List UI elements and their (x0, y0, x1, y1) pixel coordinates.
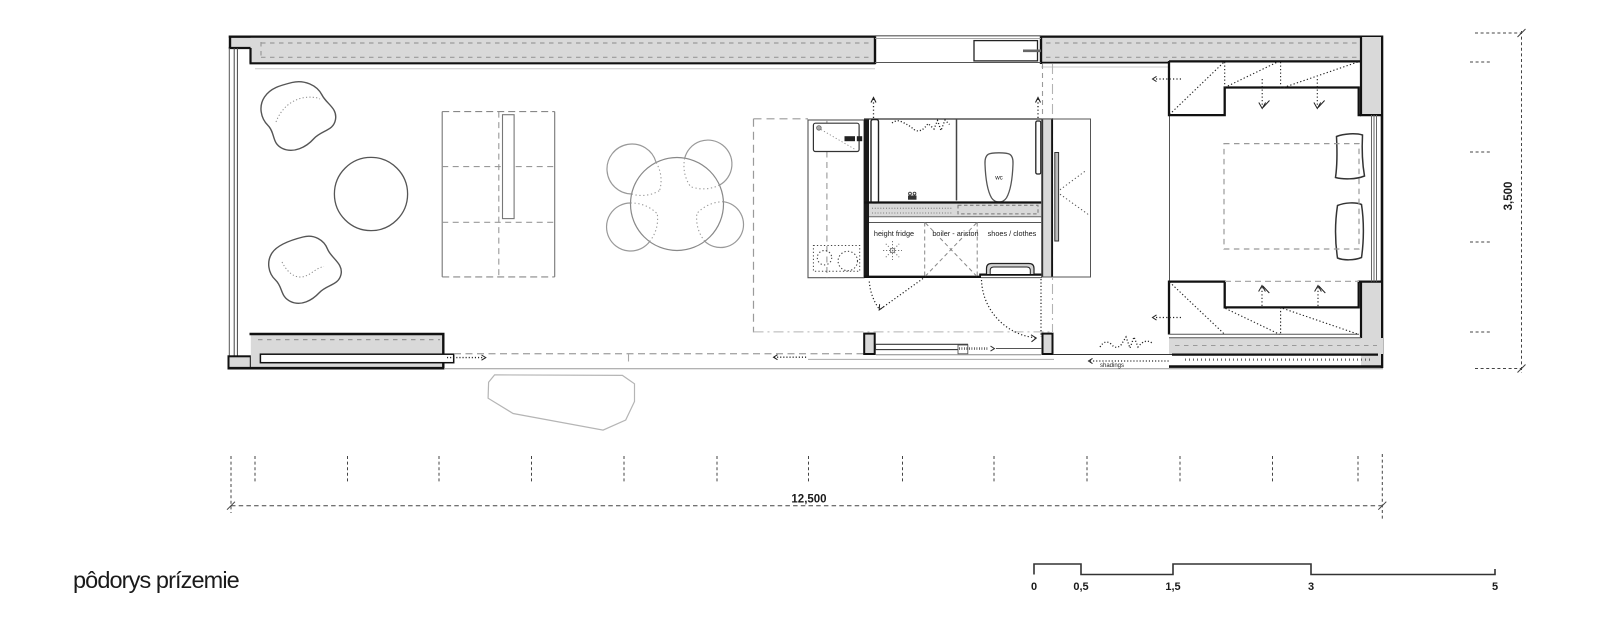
svg-text:shadings: shadings (1100, 363, 1124, 369)
svg-text:0: 0 (1031, 581, 1037, 593)
svg-text:pôdorys prízemie: pôdorys prízemie (73, 567, 240, 593)
svg-text:boiler - ariston: boiler - ariston (932, 229, 978, 238)
svg-text:wc: wc (994, 175, 1003, 182)
svg-text:5: 5 (1492, 581, 1498, 593)
svg-text:shoes / clothes: shoes / clothes (988, 229, 1037, 238)
svg-text:12,500: 12,500 (791, 494, 826, 506)
svg-text:3: 3 (1308, 581, 1314, 593)
svg-text:3,500: 3,500 (1503, 182, 1515, 211)
svg-text:height fridge: height fridge (874, 229, 914, 238)
svg-text:1,5: 1,5 (1165, 581, 1180, 593)
svg-text:0,5: 0,5 (1073, 581, 1088, 593)
